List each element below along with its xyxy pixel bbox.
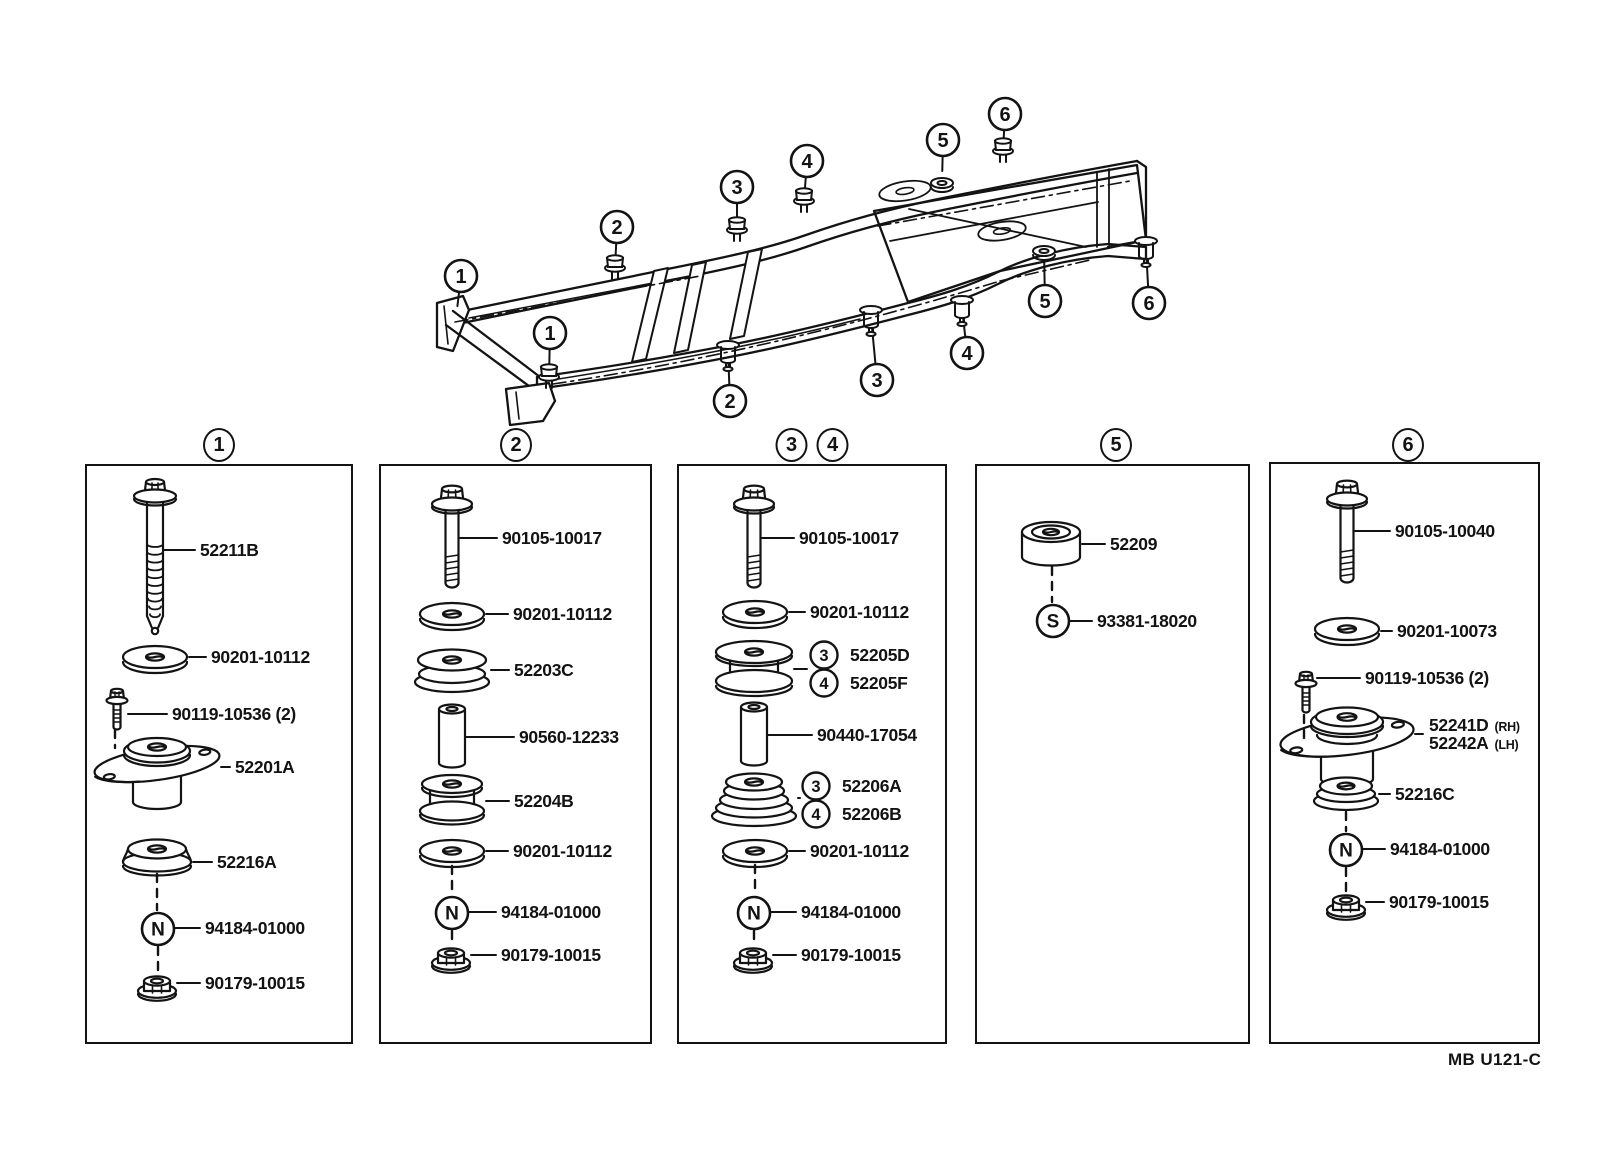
part-number-label: 90179-10015 — [1389, 892, 1489, 912]
mount-point-glyph — [951, 296, 973, 326]
parts-panel-3-4: 90105-1001790201-10112 352205D 452205F 9… — [677, 464, 947, 1044]
panel-number-badge: 5 — [1100, 428, 1132, 462]
mount-point-glyph — [605, 255, 625, 279]
part-number-label: 52203C — [514, 660, 574, 680]
part-number-label: 94184-01000 — [501, 902, 601, 922]
ref-number-badge: 4 — [811, 670, 838, 697]
panel-number-badge: 6 — [1392, 428, 1424, 462]
frame-callout-5: 5 — [927, 124, 959, 192]
mount-point-glyph — [1033, 246, 1055, 260]
part-icon-circle-letter: N — [436, 897, 468, 929]
svg-text:4: 4 — [961, 343, 973, 365]
part-number-label: 90201-10112 — [810, 841, 909, 861]
svg-text:6: 6 — [1143, 293, 1154, 315]
svg-text:5: 5 — [937, 130, 948, 152]
part-icon-collar — [439, 705, 465, 768]
panel-number-badge: 4 — [817, 428, 849, 462]
part-number-label: 52205F — [850, 673, 908, 693]
panel-number-badge: 1 — [203, 428, 235, 462]
part-number-label: 90201-10112 — [211, 647, 310, 667]
svg-text:S: S — [1047, 612, 1060, 633]
part-icon-washer — [123, 646, 187, 673]
part-icon-cushion-dome — [123, 840, 191, 876]
frame-callout-6: 6 — [1133, 237, 1165, 319]
part-icon-bolt-long — [134, 479, 176, 634]
svg-text:5: 5 — [1039, 291, 1050, 313]
part-number-label: 52211B — [200, 540, 259, 560]
part-icon-washer — [420, 840, 484, 867]
part-number-label: 52204B — [514, 791, 574, 811]
panel-number-badges: 2 — [500, 428, 532, 462]
part-number-label: 52216C — [1395, 784, 1455, 804]
svg-text:3: 3 — [731, 177, 742, 199]
part-icon-washer — [420, 603, 484, 630]
part-number-label: 90440-17054 — [817, 725, 917, 745]
svg-text:N: N — [1339, 841, 1353, 862]
frame-callout-2: 2 — [601, 211, 633, 279]
part-number-label: 94184-01000 — [205, 918, 305, 938]
part-number-label: 90119-10536 (2) — [1365, 668, 1489, 688]
svg-text:3: 3 — [871, 370, 882, 392]
part-number-label: 90119-10536 (2) — [172, 704, 296, 724]
panel-number-badge: 3 — [776, 428, 808, 462]
part-number-label: 52209 — [1110, 534, 1158, 554]
part-icon-washer — [723, 840, 787, 867]
frame-callout-4: 4 — [951, 296, 983, 369]
part-icon-washer — [723, 601, 787, 628]
part-icon-cushion-round — [1022, 522, 1080, 566]
svg-text:4: 4 — [819, 675, 829, 693]
part-number-label: 90560-12233 — [519, 727, 619, 747]
svg-text:N: N — [151, 920, 165, 941]
svg-text:1: 1 — [455, 266, 466, 288]
part-icon-cone — [712, 774, 796, 827]
part-number-label: 90201-10073 — [1397, 621, 1497, 641]
part-icon-nut — [1327, 895, 1365, 919]
part-number-label: 90179-10015 — [801, 945, 901, 965]
part-icon-circle-letter: S — [1037, 605, 1069, 637]
part-icon-mount-plate — [1278, 708, 1415, 787]
part-number-label: 52216A — [217, 852, 277, 872]
part-icon-cushion-rib — [1314, 778, 1378, 811]
frame-overview-diagram: 1 1 2 3 4 5 6 — [0, 0, 1600, 456]
part-icon-bolt-small — [107, 689, 128, 730]
part-number-label: 52241D(RH) — [1429, 715, 1520, 735]
part-number-label: 90105-10017 — [799, 528, 899, 548]
part-icon-washer — [1315, 618, 1379, 645]
svg-text:4: 4 — [801, 151, 813, 173]
frame-callout-1: 1 — [534, 317, 566, 388]
part-icon-spool — [420, 775, 484, 825]
parts-panel-6: 90105-1004090201-10073 90119-10536 (2) 5… — [1269, 462, 1540, 1044]
part-number-label: 52206B — [842, 804, 902, 824]
panel-number-badges: 34 — [776, 428, 849, 462]
part-number-label: 90201-10112 — [513, 841, 612, 861]
part-number-label: 52206A — [842, 776, 902, 796]
part-number-label: 90105-10040 — [1395, 521, 1495, 541]
mount-point-glyph — [794, 188, 814, 212]
mount-point-glyph — [860, 306, 882, 336]
part-number-label: 52242A(LH) — [1429, 733, 1518, 753]
mount-point-glyph — [717, 341, 739, 371]
part-number-label: 94184-01000 — [801, 902, 901, 922]
svg-text:2: 2 — [611, 217, 622, 239]
part-icon-nut — [734, 948, 772, 972]
part-number-label: 52201A — [235, 757, 295, 777]
frame-callout-4: 4 — [791, 145, 823, 212]
svg-text:6: 6 — [999, 104, 1010, 126]
mount-point-glyph — [993, 138, 1013, 162]
part-number-label: 90179-10015 — [501, 945, 601, 965]
mount-point-glyph — [727, 217, 747, 241]
part-icon-pulley — [716, 641, 792, 696]
part-number-label: 90201-10112 — [810, 602, 909, 622]
panel-number-badges: 6 — [1392, 428, 1424, 462]
svg-text:N: N — [747, 904, 761, 925]
ref-number-badge: 3 — [811, 642, 838, 669]
parts-panel-2: 90105-1001790201-10112 52203C 90560-1223… — [379, 464, 652, 1044]
parts-panel-5: 52209S93381-18020 — [975, 464, 1250, 1044]
part-icon-circle-letter: N — [738, 897, 770, 929]
part-icon-bolt — [734, 486, 774, 588]
svg-text:3: 3 — [811, 778, 820, 796]
part-icon-nut — [432, 948, 470, 972]
part-icon-circle-letter: N — [142, 913, 174, 945]
part-icon-mount — [92, 738, 221, 809]
part-icon-grommet — [415, 650, 489, 693]
svg-text:1: 1 — [544, 323, 555, 345]
panel-number-badges: 5 — [1100, 428, 1132, 462]
part-icon-nut — [138, 976, 176, 1000]
svg-text:2: 2 — [724, 391, 735, 413]
panel-number-badges: 1 — [203, 428, 235, 462]
part-number-label: 93381-18020 — [1097, 611, 1197, 631]
parts-catalog-page: 1 1 2 3 4 5 6 — [0, 0, 1600, 1152]
svg-text:N: N — [445, 904, 459, 925]
part-icon-circle-letter: N — [1330, 834, 1362, 866]
ref-number-badge: 4 — [803, 801, 830, 828]
svg-text:3: 3 — [819, 647, 828, 665]
part-number-label: 90179-10015 — [205, 973, 305, 993]
frame-callout-3: 3 — [721, 171, 753, 241]
part-number-label: 52205D — [850, 645, 910, 665]
frame-callout-5: 5 — [1029, 246, 1061, 317]
page-code: MB U121-C — [1448, 1050, 1541, 1070]
part-icon-collar — [741, 703, 767, 766]
part-number-label: 90201-10112 — [513, 604, 612, 624]
mount-point-glyph — [931, 178, 953, 192]
panel-number-badge: 2 — [500, 428, 532, 462]
svg-text:4: 4 — [811, 806, 821, 824]
frame-callout-6: 6 — [989, 98, 1021, 162]
ref-number-badge: 3 — [803, 773, 830, 800]
frame-callout-2: 2 — [714, 341, 746, 417]
part-number-label: 94184-01000 — [1390, 839, 1490, 859]
part-icon-bolt-small — [1296, 672, 1317, 713]
part-icon-bolt — [432, 486, 472, 588]
part-number-label: 90105-10017 — [502, 528, 602, 548]
parts-panel-1: 52211B90201-10112 90119-10536 (2) 52201A… — [85, 464, 353, 1044]
